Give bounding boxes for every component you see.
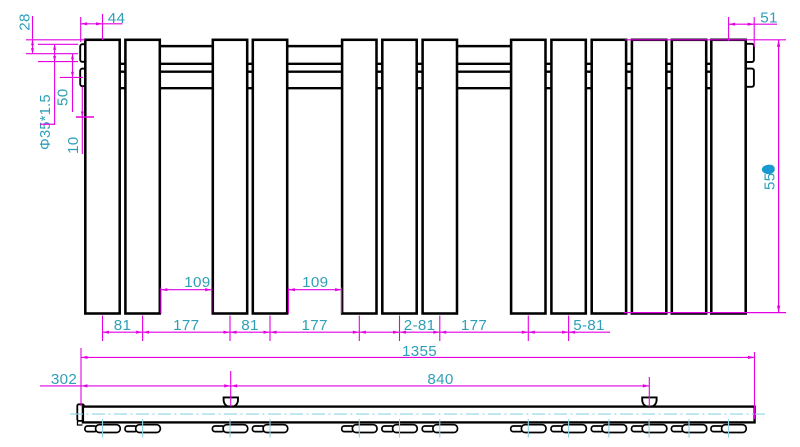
svg-text:51: 51 bbox=[760, 10, 778, 27]
svg-text:44: 44 bbox=[108, 10, 126, 27]
svg-text:1355: 1355 bbox=[402, 343, 437, 360]
svg-text:5-81: 5-81 bbox=[573, 317, 605, 334]
svg-text:81: 81 bbox=[114, 317, 132, 334]
svg-text:840: 840 bbox=[427, 371, 453, 388]
svg-text:109: 109 bbox=[302, 274, 328, 291]
svg-text:81: 81 bbox=[241, 317, 259, 334]
svg-text:10: 10 bbox=[65, 137, 82, 155]
svg-text:177: 177 bbox=[461, 317, 487, 334]
svg-text:177: 177 bbox=[301, 317, 327, 334]
svg-text:177: 177 bbox=[173, 317, 199, 334]
svg-text:28: 28 bbox=[17, 13, 34, 31]
svg-text:Φ35*1.5: Φ35*1.5 bbox=[38, 94, 54, 150]
svg-text:109: 109 bbox=[184, 274, 210, 291]
svg-text:2-81: 2-81 bbox=[404, 317, 436, 334]
svg-text:302: 302 bbox=[51, 371, 77, 388]
svg-text:50: 50 bbox=[55, 89, 72, 107]
